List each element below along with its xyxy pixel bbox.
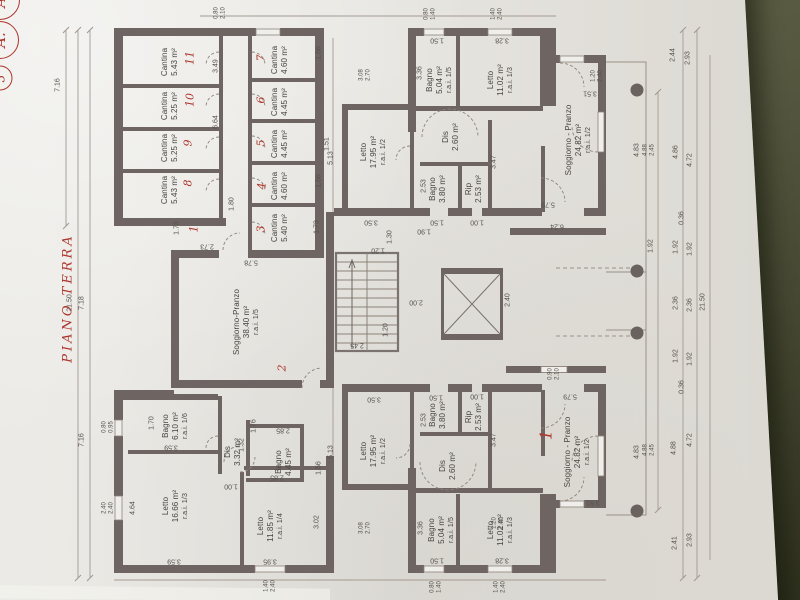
dim-label: 1.20 — [383, 323, 390, 337]
unit-number: 3 — [255, 226, 268, 233]
room-label-letto-1185: Letto11.85 m²r.a.i. 1/4 — [256, 510, 286, 542]
dim-label: 7.16 — [79, 433, 86, 447]
room-label-cantina-7: Cantina4.60 m² — [270, 46, 290, 74]
dim-label: 1.56 — [316, 174, 323, 188]
window-dim-label: 4.882.45 — [643, 444, 656, 456]
dim-label: 1.30 — [387, 230, 394, 244]
room-label-cantina-9: Cantina5.25 m² — [160, 134, 180, 162]
dim-label: 2.41 — [672, 536, 679, 550]
dim-label: 3.95 — [263, 558, 277, 565]
dim-label: 1.50 — [430, 219, 444, 226]
room-label-rip-bottom: Rip2.53 m² — [464, 403, 484, 431]
dim-label: 2.44 — [670, 48, 677, 62]
dim-label: 3.47 — [491, 155, 498, 169]
dim-label: 4.83 — [634, 445, 641, 459]
dim-label: 5.13 — [328, 151, 335, 165]
floor-title-handwritten: PIANO TERRA — [61, 233, 76, 363]
window-dim-label: 0.801.40 — [424, 8, 437, 20]
dim-label: 4.72 — [687, 153, 694, 167]
dim-label: 5.79 — [563, 393, 577, 400]
dim-label: 6.64 — [213, 115, 220, 129]
floor-plan-drawing: Cantina5.43 m² Cantina5.25 m² Cantina5.2… — [0, 0, 800, 600]
room-label-cantina-8: Cantina5.43 m² — [160, 176, 180, 204]
dim-label: 1.00 — [224, 483, 238, 490]
dim-label: 2.53 — [421, 179, 428, 193]
unit-number: 9 — [182, 140, 195, 147]
dim-label: 1.32 — [239, 438, 246, 452]
dim-label: 2.40 — [505, 293, 512, 307]
unit-number: 8 — [182, 180, 195, 187]
room-label-cantina-10: Cantina5.25 m² — [160, 92, 180, 120]
room-label-cantina-4: Cantina4.60 m² — [270, 172, 290, 200]
dim-label: 4.86 — [673, 145, 680, 159]
dim-label: 3.49 — [213, 59, 220, 73]
dim-label: 3.36 — [418, 521, 425, 535]
dim-label: 1.92 — [648, 239, 655, 253]
room-label-letto-1666: Letto16.66 m²r.a.i. 1/3 — [161, 490, 191, 522]
room-label-bagno-380-bottom: Bagno3.80 m² — [428, 401, 448, 429]
unit-number: 6 — [255, 97, 268, 104]
unit-number: 7 — [255, 55, 268, 62]
dim-label: 0.36 — [679, 380, 686, 394]
dim-label: 2.36 — [687, 298, 694, 312]
dim-label: 4.88 — [671, 441, 678, 455]
dim-label: 1.92 — [687, 352, 694, 366]
dim-label: 2.00 — [409, 299, 423, 306]
window-dim-label: 2.402.40 — [102, 502, 115, 514]
dim-label: 2.53 — [421, 413, 428, 427]
window-dim-label: 1.402.40 — [494, 581, 507, 593]
window-dim-label: 0.902.10 — [548, 368, 561, 380]
dim-label: 1.92 — [673, 349, 680, 363]
dim-label: 3.36 — [417, 66, 424, 80]
dim-label: 2.93 — [685, 51, 692, 65]
dim-label: 1.00 — [470, 219, 484, 226]
dim-label: 2.36 — [673, 296, 680, 310]
dim-label: 1.73 — [314, 220, 321, 234]
dim-label: 5.79 — [541, 201, 555, 208]
dim-label: 1.56 — [316, 46, 323, 60]
window-dim-label: 1.202.40 — [492, 517, 505, 529]
room-label-cantina-11: Cantina5.43 m² — [160, 48, 180, 76]
dim-label: 1.92 — [687, 242, 694, 256]
window-dim-label: 3.082.70 — [359, 69, 372, 81]
dim-label: 21.50 — [700, 293, 707, 311]
room-label-soggiorno-top: Soggiorno - Pranzo24.82 m²r.a.i. 1/2 — [564, 105, 594, 176]
plan-linework — [0, 0, 800, 600]
room-label-soggiorno-38: Soggiorno-Pranzo38.40 m²r.a.i. 1/5 — [232, 289, 262, 355]
room-label-bagno-610: Bagno6.10 m²r.a.i. 1/6 — [161, 412, 191, 440]
dim-label: 7.18 — [79, 296, 86, 310]
window-dim-label: 0.802.10 — [214, 7, 227, 19]
dim-label: 1.92 — [673, 240, 680, 254]
dim-label: 2.73 — [200, 243, 214, 250]
dim-label: 3.59 — [164, 444, 178, 451]
room-label-dis-top: Dis2.60 m² — [441, 123, 461, 151]
unit-number: 10 — [184, 93, 197, 107]
dim-label: 1.20 — [371, 247, 385, 254]
room-label-bagno-445: Bagno4.45 m² — [274, 448, 294, 476]
room-label-soggiorno-bottom: Soggiorno - Pranzo24.82 m²r.a.i. 1/2 — [563, 417, 593, 488]
window-dim-label: 0.801.40 — [430, 581, 443, 593]
room-label-letto-1795-top: Letto17.95 m²r.a.i. 1/2 — [359, 136, 389, 168]
window-dim-label: 1.402.40 — [491, 8, 504, 20]
window-dim-label: 1.402.40 — [264, 580, 277, 592]
window-dim-label: 0.800.95 — [102, 421, 115, 433]
room-label-cantina-3: Cantina5.40 m² — [270, 214, 290, 242]
dim-label: 1.00 — [470, 393, 484, 400]
dim-label: 6.24 — [550, 223, 564, 230]
dim-label: 2.85 — [270, 474, 284, 481]
dim-label: 1.56 — [316, 461, 323, 475]
dim-label: 3.51 — [583, 90, 597, 97]
room-label-letto-1102-top: Letto11.02 m²r.a.i. 1/3 — [486, 64, 516, 96]
window-dim-label: 1.202.40 — [591, 70, 604, 82]
dim-label: 3.59 — [167, 558, 181, 565]
dim-label: 4.72 — [687, 433, 694, 447]
dim-label: 2.45 — [350, 342, 364, 349]
dim-label: 1.51 — [324, 137, 331, 151]
room-label-cantina-5: Cantina4.45 m² — [270, 130, 290, 158]
dim-label: 1.50 — [430, 37, 444, 44]
dim-label: 5.78 — [244, 259, 258, 266]
room-label-cantina-6: Cantina4.45 m² — [270, 88, 290, 116]
dim-label: 3.51 — [586, 499, 600, 506]
dim-label: 1.76 — [251, 419, 258, 433]
dim-label: 0.36 — [679, 211, 686, 225]
floor-plan-photo: Cantina5.43 m² Cantina5.25 m² Cantina5.2… — [0, 0, 800, 600]
unit-number: 11 — [184, 51, 197, 65]
dim-label: 3.47 — [491, 433, 498, 447]
dim-label: 3.50 — [364, 219, 378, 226]
dim-label: 3.50 — [367, 396, 381, 403]
room-label-bagno-504-bottom: Bagno5.04 m²r.a.i. 1/5 — [427, 516, 457, 544]
dim-label: 1.50 — [430, 557, 444, 564]
dim-label: 3.28 — [495, 37, 509, 44]
dim-label: 4.64 — [130, 501, 137, 515]
dim-label: 1.73 — [174, 221, 181, 235]
room-label-dis-bottom: Dis2.60 m² — [438, 452, 458, 480]
dim-label: 2.85 — [276, 427, 290, 434]
dim-label: 2.93 — [687, 533, 694, 547]
dim-label: 7.16 — [55, 78, 62, 92]
room-label-rip-top: Rip2.53 m² — [464, 175, 484, 203]
unit-number: 1 — [188, 226, 201, 233]
window-dim-label: 3.082.70 — [359, 522, 372, 534]
room-label-letto-1795-bottom: Letto17.95 m²r.a.i. 1/2 — [359, 435, 389, 467]
window-dim-label: 4.882.45 — [643, 144, 656, 156]
unit-number: 2 — [276, 365, 289, 372]
dim-label: 1.80 — [229, 197, 236, 211]
unit-number: 4 — [256, 183, 269, 190]
dim-label: 5.13 — [328, 445, 335, 459]
dim-label: 3.02 — [314, 515, 321, 529]
dim-label: 1.90 — [417, 228, 431, 235]
room-label-bagno-504-top: Bagno5.04 m²r.a.i. 1/5 — [425, 66, 455, 94]
dim-label: 1.50 — [429, 394, 443, 401]
apartment-number: 1 — [537, 430, 556, 440]
unit-number: 5 — [255, 140, 268, 147]
dim-label: 1.70 — [149, 416, 156, 430]
dim-label: 3.28 — [495, 557, 509, 564]
dim-label: 4.83 — [634, 143, 641, 157]
room-label-bagno-380-top: Bagno3.80 m² — [428, 175, 448, 203]
elevator — [441, 268, 503, 340]
